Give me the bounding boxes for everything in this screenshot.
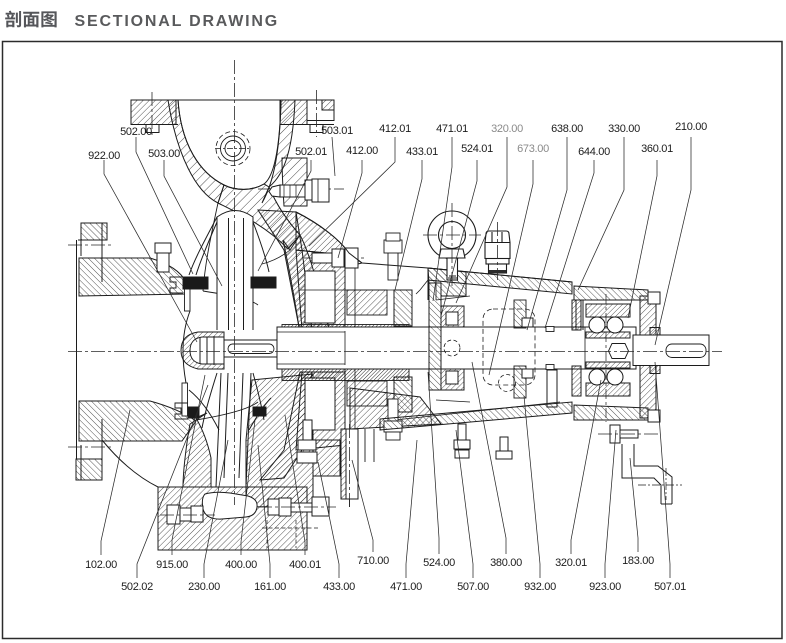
svg-text:503.00: 503.00 — [148, 148, 180, 160]
svg-text:524.00: 524.00 — [423, 557, 455, 569]
svg-text:507.01: 507.01 — [654, 581, 686, 593]
svg-text:922.00: 922.00 — [88, 150, 120, 162]
svg-text:161.00: 161.00 — [254, 581, 286, 593]
svg-text:400.01: 400.01 — [289, 559, 321, 571]
svg-text:230.00: 230.00 — [188, 581, 220, 593]
svg-text:400.00: 400.00 — [225, 559, 257, 571]
svg-text:503.01: 503.01 — [321, 125, 353, 137]
svg-text:102.00: 102.00 — [85, 559, 117, 571]
svg-text:710.00: 710.00 — [357, 555, 389, 567]
svg-text:320.01: 320.01 — [555, 557, 587, 569]
svg-text:SECTIONAL DRAWING: SECTIONAL DRAWING — [75, 13, 280, 30]
svg-text:915.00: 915.00 — [156, 559, 188, 571]
svg-text:673.00: 673.00 — [517, 143, 549, 155]
svg-text:433.00: 433.00 — [323, 581, 355, 593]
svg-text:502.02: 502.02 — [121, 581, 153, 593]
svg-text:360.01: 360.01 — [641, 143, 673, 155]
svg-text:471.01: 471.01 — [436, 123, 468, 135]
svg-text:183.00: 183.00 — [622, 555, 654, 567]
svg-text:502.00: 502.00 — [120, 126, 152, 138]
svg-text:210.00: 210.00 — [675, 121, 707, 133]
svg-text:923.00: 923.00 — [589, 581, 621, 593]
svg-text:320.00: 320.00 — [491, 123, 523, 135]
svg-text:471.00: 471.00 — [390, 581, 422, 593]
svg-text:380.00: 380.00 — [490, 557, 522, 569]
svg-text:644.00: 644.00 — [578, 146, 610, 158]
svg-text:502.01: 502.01 — [295, 146, 327, 158]
svg-text:433.01: 433.01 — [406, 146, 438, 158]
svg-text:507.00: 507.00 — [457, 581, 489, 593]
svg-text:412.00: 412.00 — [346, 145, 378, 157]
svg-text:524.01: 524.01 — [461, 143, 493, 155]
svg-text:412.01: 412.01 — [379, 123, 411, 135]
svg-text:330.00: 330.00 — [608, 123, 640, 135]
svg-text:638.00: 638.00 — [551, 123, 583, 135]
svg-text:932.00: 932.00 — [524, 581, 556, 593]
